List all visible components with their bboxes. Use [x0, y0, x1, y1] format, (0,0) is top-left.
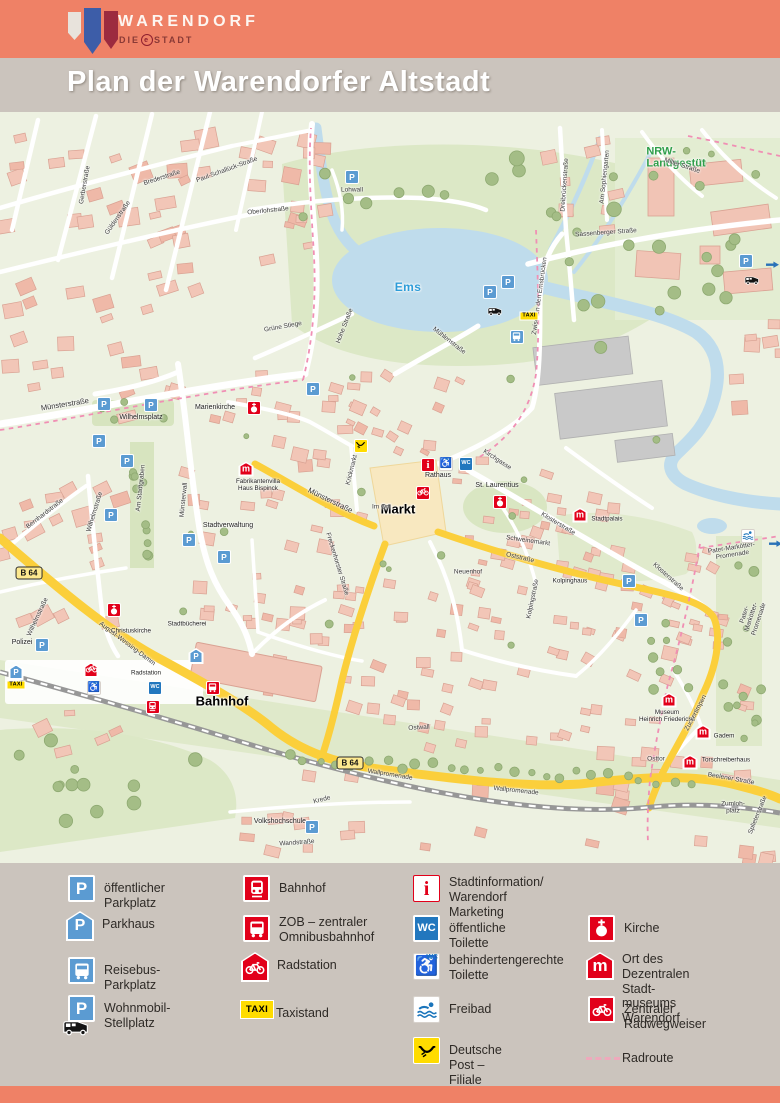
legend-label: Radroute: [622, 1051, 673, 1066]
legend-label: Kirche: [624, 921, 659, 936]
legend-label: öffentlicher Parkplatz: [104, 881, 165, 911]
legend-label: Freibad: [449, 1002, 491, 1017]
legend-post-icon: [413, 1037, 440, 1064]
markt-square: [370, 460, 446, 546]
legend-label: Wohnmobil-Stellplatz: [104, 1001, 170, 1031]
legend-label: Radstation: [277, 958, 337, 973]
brand-slogan-stadt: STADT: [154, 35, 193, 45]
legend-p-icon: P: [68, 875, 95, 902]
legend-zob-icon: [243, 915, 270, 942]
legend-label: Zentraler Radwegweiser: [624, 1002, 706, 1032]
footer-bar: [0, 1086, 780, 1103]
legend-parkhaus-icon: P: [66, 911, 94, 941]
legend-radweg-icon: [588, 996, 615, 1023]
map-legend: Pöffentlicher ParkplatzPParkhausReisebus…: [0, 863, 780, 1086]
legend-reisebus-icon: [68, 957, 95, 984]
legend-info-icon: i: [413, 875, 440, 902]
legend-wohnmobil-icon: P: [68, 995, 95, 1022]
brand-slogan: DIE e STADT: [119, 34, 193, 46]
brand-name: WARENDORF: [118, 13, 259, 31]
legend-label: Taxistand: [276, 1006, 329, 1021]
legend-label: Deutsche Post – Filiale: [449, 1043, 502, 1087]
logo-shield-red: [104, 11, 118, 49]
legend-camper-icon: [62, 1020, 90, 1036]
city-map: EmsNRW- LandgestütMarktRathausSt. Lauren…: [0, 112, 780, 863]
title-band: Plan der Warendorfer Altstadt: [0, 58, 780, 112]
legend-radstation-icon: [241, 952, 269, 982]
legend-wc-icon: WC: [413, 915, 440, 942]
header-bar: WARENDORF DIE e STADT: [0, 0, 780, 58]
legend-taxi-icon: TAXI: [240, 1000, 274, 1019]
legend-label: Parkhaus: [102, 917, 155, 932]
legend-label: öffentliche Toilette: [449, 921, 506, 951]
legend-radroute-icon: [586, 1045, 620, 1072]
legend-bahnhof-icon: [243, 875, 270, 902]
page-title: Plan der Warendorfer Altstadt: [67, 66, 490, 99]
brand-slogan-die: DIE: [119, 35, 140, 45]
legend-label: ZOB – zentraler Omnibusbahnhof: [279, 915, 374, 945]
legend-label: behindertengerechte Toilette: [449, 953, 564, 983]
map-canvas: [0, 112, 780, 863]
legend-label: Reisebus-Parkplatz: [104, 963, 160, 993]
logo-shield-blue: [84, 8, 101, 54]
legend-museum-icon: m: [586, 952, 614, 980]
logo-shield-light: [68, 12, 81, 40]
legend-label: Stadtinformation/ Warendorf Marketing: [449, 875, 544, 919]
legend-freibad-icon: [413, 996, 440, 1023]
legend-wcb-icon: ♿WC: [413, 953, 440, 980]
legend-kirche-icon: [588, 915, 615, 942]
ems-e-icon: e: [141, 34, 153, 46]
plan-page: WARENDORF DIE e STADT Plan der Warendorf…: [0, 0, 780, 1103]
legend-label: Bahnhof: [279, 881, 326, 896]
